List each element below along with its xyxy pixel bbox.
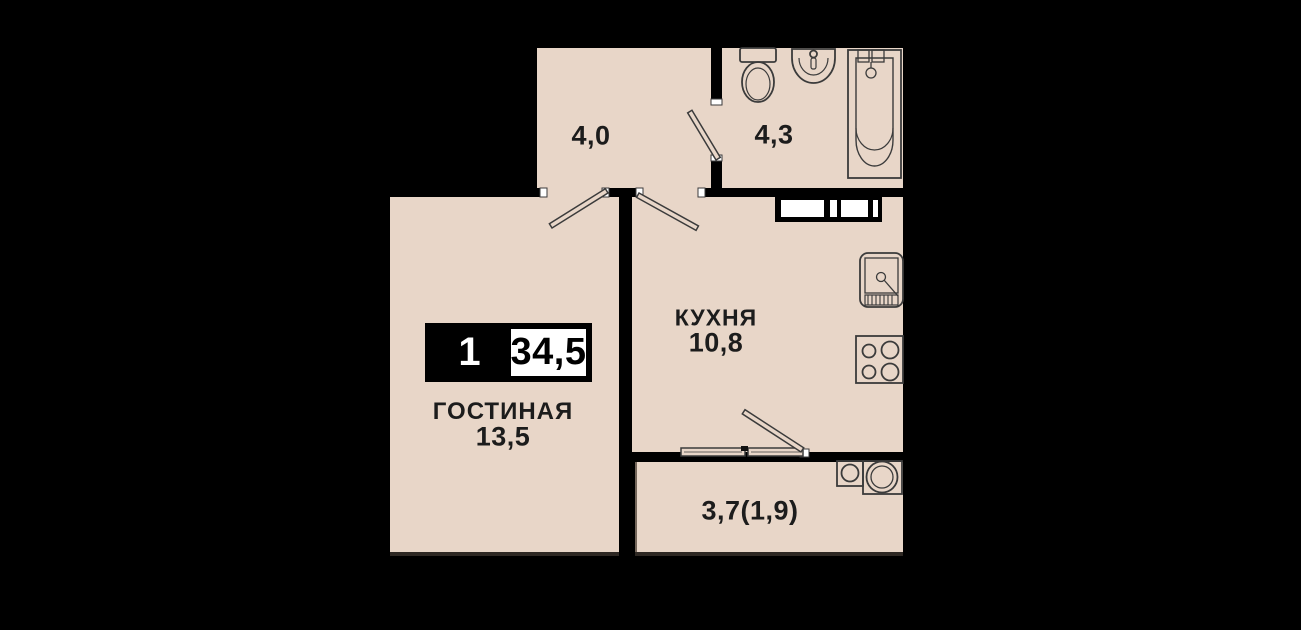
bathroom-area-label: 4,3: [754, 122, 793, 149]
kitchen-area-label: 10,8: [689, 330, 744, 357]
wall-hall-bath-upper: [711, 39, 722, 105]
window-mullion: [741, 446, 748, 451]
door-jamb: [540, 188, 547, 197]
total-area-box: 34,5: [511, 329, 586, 376]
door-jamb: [698, 188, 705, 197]
balcony-area-label: 3,7(1,9): [701, 498, 798, 525]
shaft-opening: [830, 200, 837, 217]
kitchen-name-label: КУХНЯ: [675, 307, 757, 330]
wall-horizontal-right: [700, 188, 903, 197]
balcony-window: [681, 446, 803, 456]
floor-areas: [390, 48, 903, 553]
hallway-area-label: 4,0: [571, 123, 610, 150]
kitchen-floor: [632, 197, 903, 452]
room-count-label: 1: [427, 325, 512, 380]
wall-living-bottom-thin: [390, 552, 619, 556]
wall-balcony-left: [632, 452, 681, 462]
wall-right: [903, 39, 912, 556]
floor-plan-drawing: [0, 0, 1301, 630]
door-jamb: [711, 99, 722, 105]
wall-living-kitchen: [619, 197, 632, 556]
wall-horizontal-left: [383, 188, 547, 197]
living-name-label: ГОСТИНАЯ: [433, 400, 574, 424]
shaft-opening: [781, 200, 824, 217]
wall-balcony-left-thin: [635, 462, 637, 552]
wall-left: [383, 188, 390, 556]
wall-balcony-bottom-thin: [635, 552, 903, 556]
summary-badge: 1 34,5: [425, 323, 592, 382]
total-area-label: 34,5: [511, 331, 587, 374]
shaft-opening: [873, 200, 878, 217]
living-area-label: 13,5: [476, 424, 531, 451]
shaft-opening: [841, 200, 868, 217]
kitchen-sink-grill: [868, 295, 892, 305]
floor-plan: 4,0 4,3 КУХНЯ 10,8 ГОСТИНАЯ 13,5 3,7(1,9…: [0, 0, 1301, 630]
